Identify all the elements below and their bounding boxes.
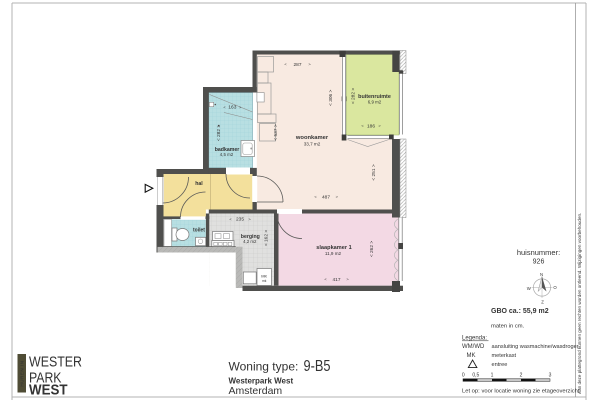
svg-text:MK: MK — [467, 353, 476, 359]
svg-text:287: 287 — [293, 62, 301, 68]
svg-text:1: 1 — [491, 372, 494, 378]
svg-text:0,5: 0,5 — [472, 372, 479, 378]
svg-text:3: 3 — [549, 372, 552, 378]
svg-text:4,2 m2: 4,2 m2 — [243, 239, 257, 244]
svg-text:< 306 >: < 306 > — [328, 89, 334, 105]
svg-text:6,9 m2: 6,9 m2 — [368, 100, 382, 105]
svg-text:WESTER: WESTER — [29, 355, 82, 371]
svg-text:huisnummer:: huisnummer: — [517, 248, 560, 257]
svg-text:33,7 m2: 33,7 m2 — [304, 142, 321, 147]
svg-text:926: 926 — [533, 259, 545, 266]
svg-text:entree: entree — [492, 362, 508, 368]
svg-text:woonkamer: woonkamer — [295, 135, 329, 141]
svg-text:11,9 m2: 11,9 m2 — [325, 251, 342, 256]
svg-text:maten in cm.: maten in cm. — [491, 323, 525, 329]
svg-text:MK: MK — [261, 274, 267, 279]
svg-text:Z: Z — [541, 300, 544, 305]
svg-text:hal: hal — [195, 181, 203, 187]
svg-text:< 262 >: < 262 > — [369, 241, 375, 257]
svg-text:N: N — [540, 272, 543, 277]
svg-text:0: 0 — [462, 372, 465, 378]
svg-text:9-B5: 9-B5 — [304, 358, 331, 375]
svg-text:< 282 >: < 282 > — [216, 125, 222, 141]
svg-text:WM/WD: WM/WD — [462, 344, 485, 350]
svg-text:163: 163 — [228, 105, 236, 111]
svg-text:417: 417 — [332, 277, 340, 283]
svg-text:487: 487 — [322, 194, 330, 200]
svg-text:Aan deze plattegrond kunnen ge: Aan deze plattegrond kunnen geen rechten… — [577, 213, 582, 394]
svg-text:< 537 >: < 537 > — [273, 124, 279, 140]
svg-text:Woning type:: Woning type: — [229, 360, 299, 374]
svg-text:WEST: WEST — [29, 382, 68, 399]
svg-text:toilet: toilet — [193, 227, 205, 233]
svg-text:mk: mk — [262, 279, 267, 283]
svg-text:W: W — [527, 286, 532, 291]
svg-text:meterkast: meterkast — [492, 353, 517, 359]
svg-text:186: 186 — [367, 123, 375, 129]
svg-text:aansluiting wasmachine/wasdrog: aansluiting wasmachine/wasdroger — [492, 344, 579, 350]
svg-text:4,5 m2: 4,5 m2 — [220, 152, 234, 157]
svg-text:voor locatie woning zie etageo: voor locatie woning zie etageoverzicht. — [482, 389, 582, 395]
svg-text:O: O — [553, 285, 557, 290]
svg-text:235: 235 — [236, 217, 244, 223]
svg-text:< 282 >: < 282 > — [351, 88, 357, 104]
svg-text:Amsterdam: Amsterdam — [229, 385, 283, 397]
svg-text:HUREN IN: HUREN IN — [20, 360, 25, 386]
svg-text:GBO ca.: 55,9 m2: GBO ca.: 55,9 m2 — [491, 308, 549, 315]
svg-text:Let op:: Let op: — [462, 389, 480, 395]
svg-text:< 162 >: < 162 > — [264, 230, 270, 246]
svg-text:< 251 >: < 251 > — [371, 164, 377, 180]
svg-text:2: 2 — [520, 372, 523, 378]
